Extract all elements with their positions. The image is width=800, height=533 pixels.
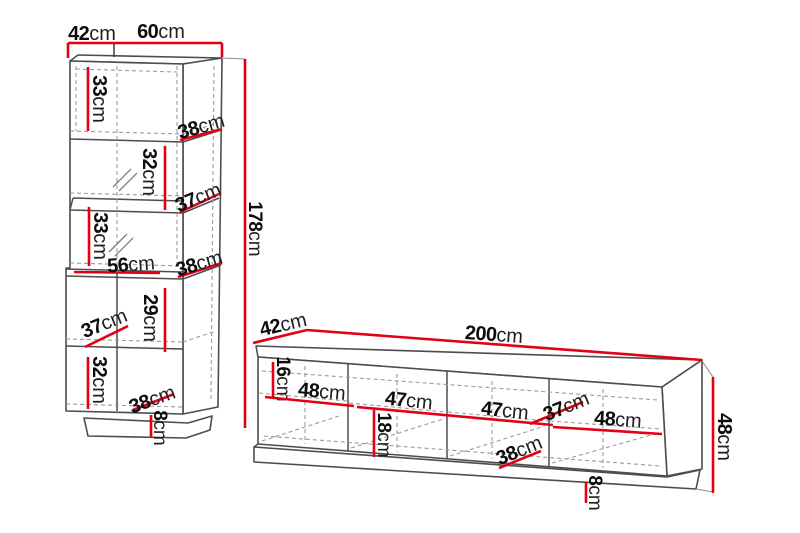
cabinet-s5-height-dim: 32cm — [88, 356, 110, 409]
cabinet-plinth — [84, 416, 212, 438]
tv-stand-plinth-height-label: 8cm — [584, 475, 605, 510]
cabinet-s2-height-label: 32cm — [138, 148, 160, 196]
cabinet-total-height-label: 178cm — [244, 201, 265, 256]
cabinet-s3-height-label: 33cm — [89, 212, 111, 260]
cabinet-s4-height-label: 29cm — [139, 294, 161, 342]
cabinet-s1-height-dim: 33cm — [88, 67, 110, 131]
tv-stand-lower-shelf-height-dim: 18cm — [373, 410, 394, 458]
tv-stand-bay4-width-label: 48cm — [593, 407, 642, 432]
tv-stand-drawing: 42cm 200cm 16cm 48cm 47cm 47cm — [253, 309, 735, 511]
cabinet-top-depth-dim: 42cm 60cm — [68, 21, 222, 58]
cabinet-drawing: 42cm 60cm 33cm 38cm 32cm 37cm — [66, 21, 265, 446]
tv-stand-depth-label: 42cm — [258, 309, 309, 341]
diagram-canvas: 42cm 60cm 33cm 38cm 32cm 37cm — [0, 0, 800, 533]
tv-stand-total-height-label: 48cm — [713, 413, 735, 461]
tv-stand-depth-dim: 42cm — [253, 309, 309, 343]
cabinet-s3-width-label: 56cm — [107, 252, 156, 277]
cabinet-top-width-label: 60cm — [137, 21, 185, 43]
cabinet-plinth-height-dim: 8cm — [149, 410, 170, 445]
cabinet-s1-height-label: 33cm — [88, 75, 110, 123]
tv-stand-lower-shelf-height-label: 18cm — [373, 412, 394, 457]
cabinet-plinth-height-label: 8cm — [149, 410, 170, 445]
cabinet-height-extension-line — [222, 58, 245, 59]
cabinet-top-depth-label: 42cm — [68, 23, 116, 45]
tv-stand-top-shelf-height-label: 16cm — [272, 356, 293, 401]
cabinet-front-face — [66, 61, 183, 414]
cabinet-s5-height-label: 32cm — [88, 356, 110, 404]
tv-stand-plinth-height-dim: 8cm — [584, 475, 605, 510]
furniture-dimension-diagram: 42cm 60cm 33cm 38cm 32cm 37cm — [0, 0, 800, 533]
tv-stand-top-shelf-height-dim: 16cm — [272, 356, 293, 401]
tv-stand-bay1-width-label: 48cm — [297, 379, 346, 405]
tv-stand-width-label: 200cm — [464, 322, 524, 348]
